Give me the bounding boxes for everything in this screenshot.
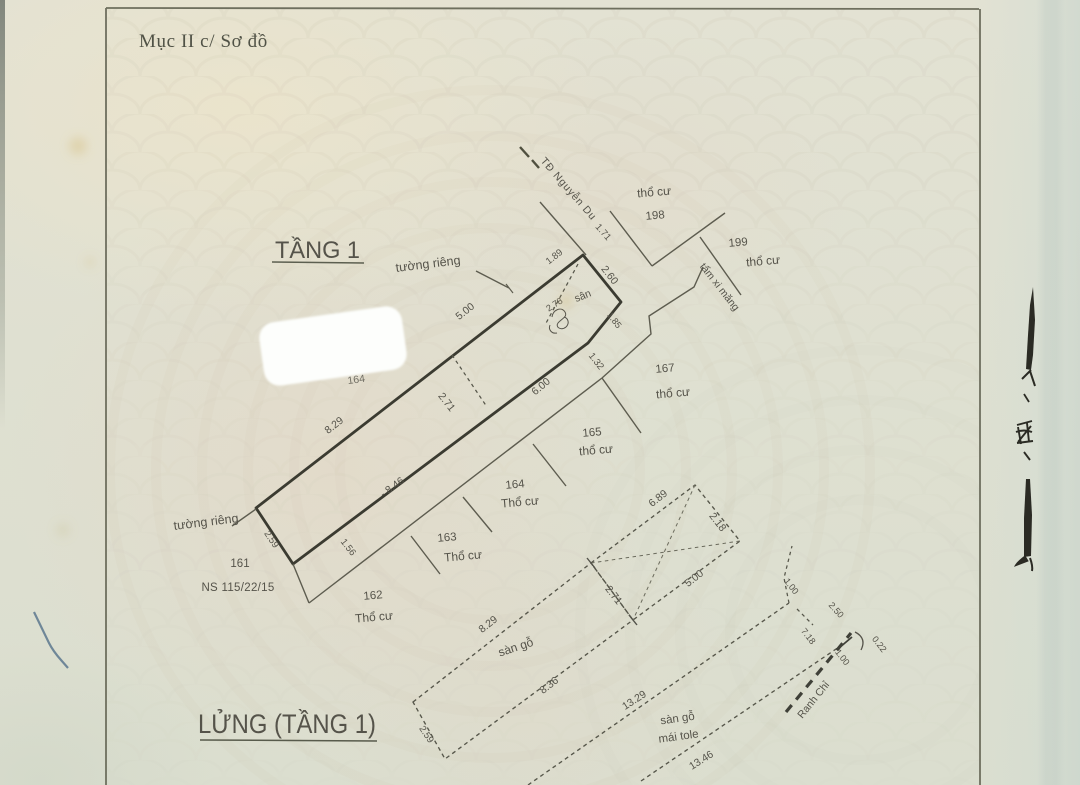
svg-text:NS 115/22/15: NS 115/22/15 bbox=[201, 582, 274, 594]
svg-text:167: 167 bbox=[655, 362, 675, 376]
svg-text:thổ cư: thổ cư bbox=[637, 184, 672, 201]
svg-text:165: 165 bbox=[582, 426, 602, 440]
svg-text:163: 163 bbox=[437, 531, 457, 545]
svg-text:198: 198 bbox=[645, 209, 665, 223]
svg-text:164: 164 bbox=[347, 373, 366, 387]
svg-text:164: 164 bbox=[505, 478, 526, 492]
svg-text:162: 162 bbox=[363, 589, 383, 603]
svg-text:thổ cư: thổ cư bbox=[578, 442, 613, 459]
svg-text:Mục II c/ Sơ đồ: Mục II c/ Sơ đồ bbox=[139, 31, 268, 52]
svg-text:thổ cư: thổ cư bbox=[655, 385, 690, 402]
svg-text:thổ cư: thổ cư bbox=[746, 253, 781, 270]
svg-text:LỬNG (TẦNG 1): LỬNG (TẦNG 1) bbox=[198, 709, 376, 739]
svg-text:199: 199 bbox=[728, 236, 748, 250]
svg-text:161: 161 bbox=[230, 558, 249, 570]
svg-text:TẦNG 1: TẦNG 1 bbox=[275, 236, 360, 264]
